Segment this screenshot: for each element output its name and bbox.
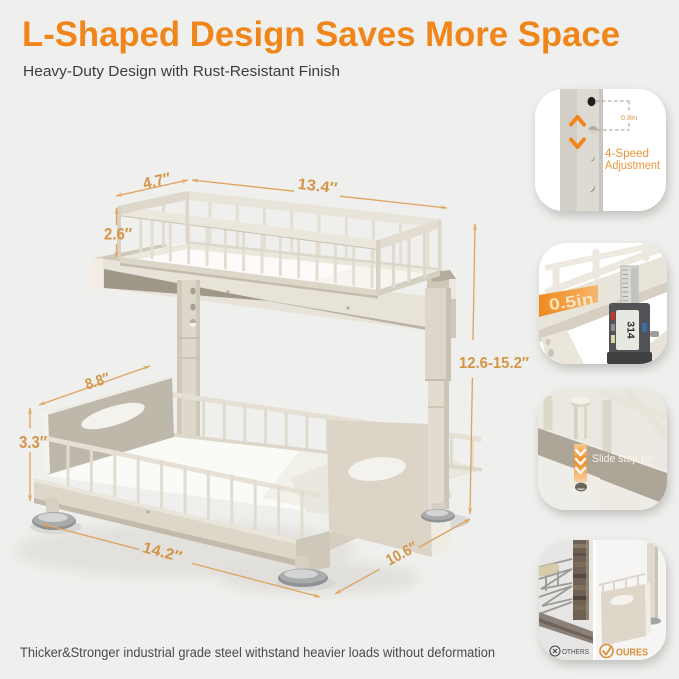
svg-text:L-Shaped Design Saves More Spa: L-Shaped Design Saves More Space <box>22 15 620 54</box>
svg-text:Heavy-Duty Design with Rust-Re: Heavy-Duty Design with Rust-Resistant Fi… <box>23 63 340 80</box>
svg-text:4-Speed: 4-Speed <box>605 148 649 160</box>
svg-text:12.6-15.2″: 12.6-15.2″ <box>459 355 529 372</box>
svg-text:Slide stop pin: Slide stop pin <box>592 453 655 465</box>
svg-text:Thicker&Stronger industrial gr: Thicker&Stronger industrial grade steel … <box>20 645 495 660</box>
svg-text:3.3″: 3.3″ <box>19 432 48 452</box>
svg-text:2.6″: 2.6″ <box>104 225 132 244</box>
svg-text:Adjustment: Adjustment <box>605 160 661 172</box>
svg-text:OTHERS: OTHERS <box>562 647 589 656</box>
svg-text:314: 314 <box>625 321 637 339</box>
svg-text:0.8in: 0.8in <box>621 113 637 122</box>
svg-text:OURES: OURES <box>616 647 648 659</box>
